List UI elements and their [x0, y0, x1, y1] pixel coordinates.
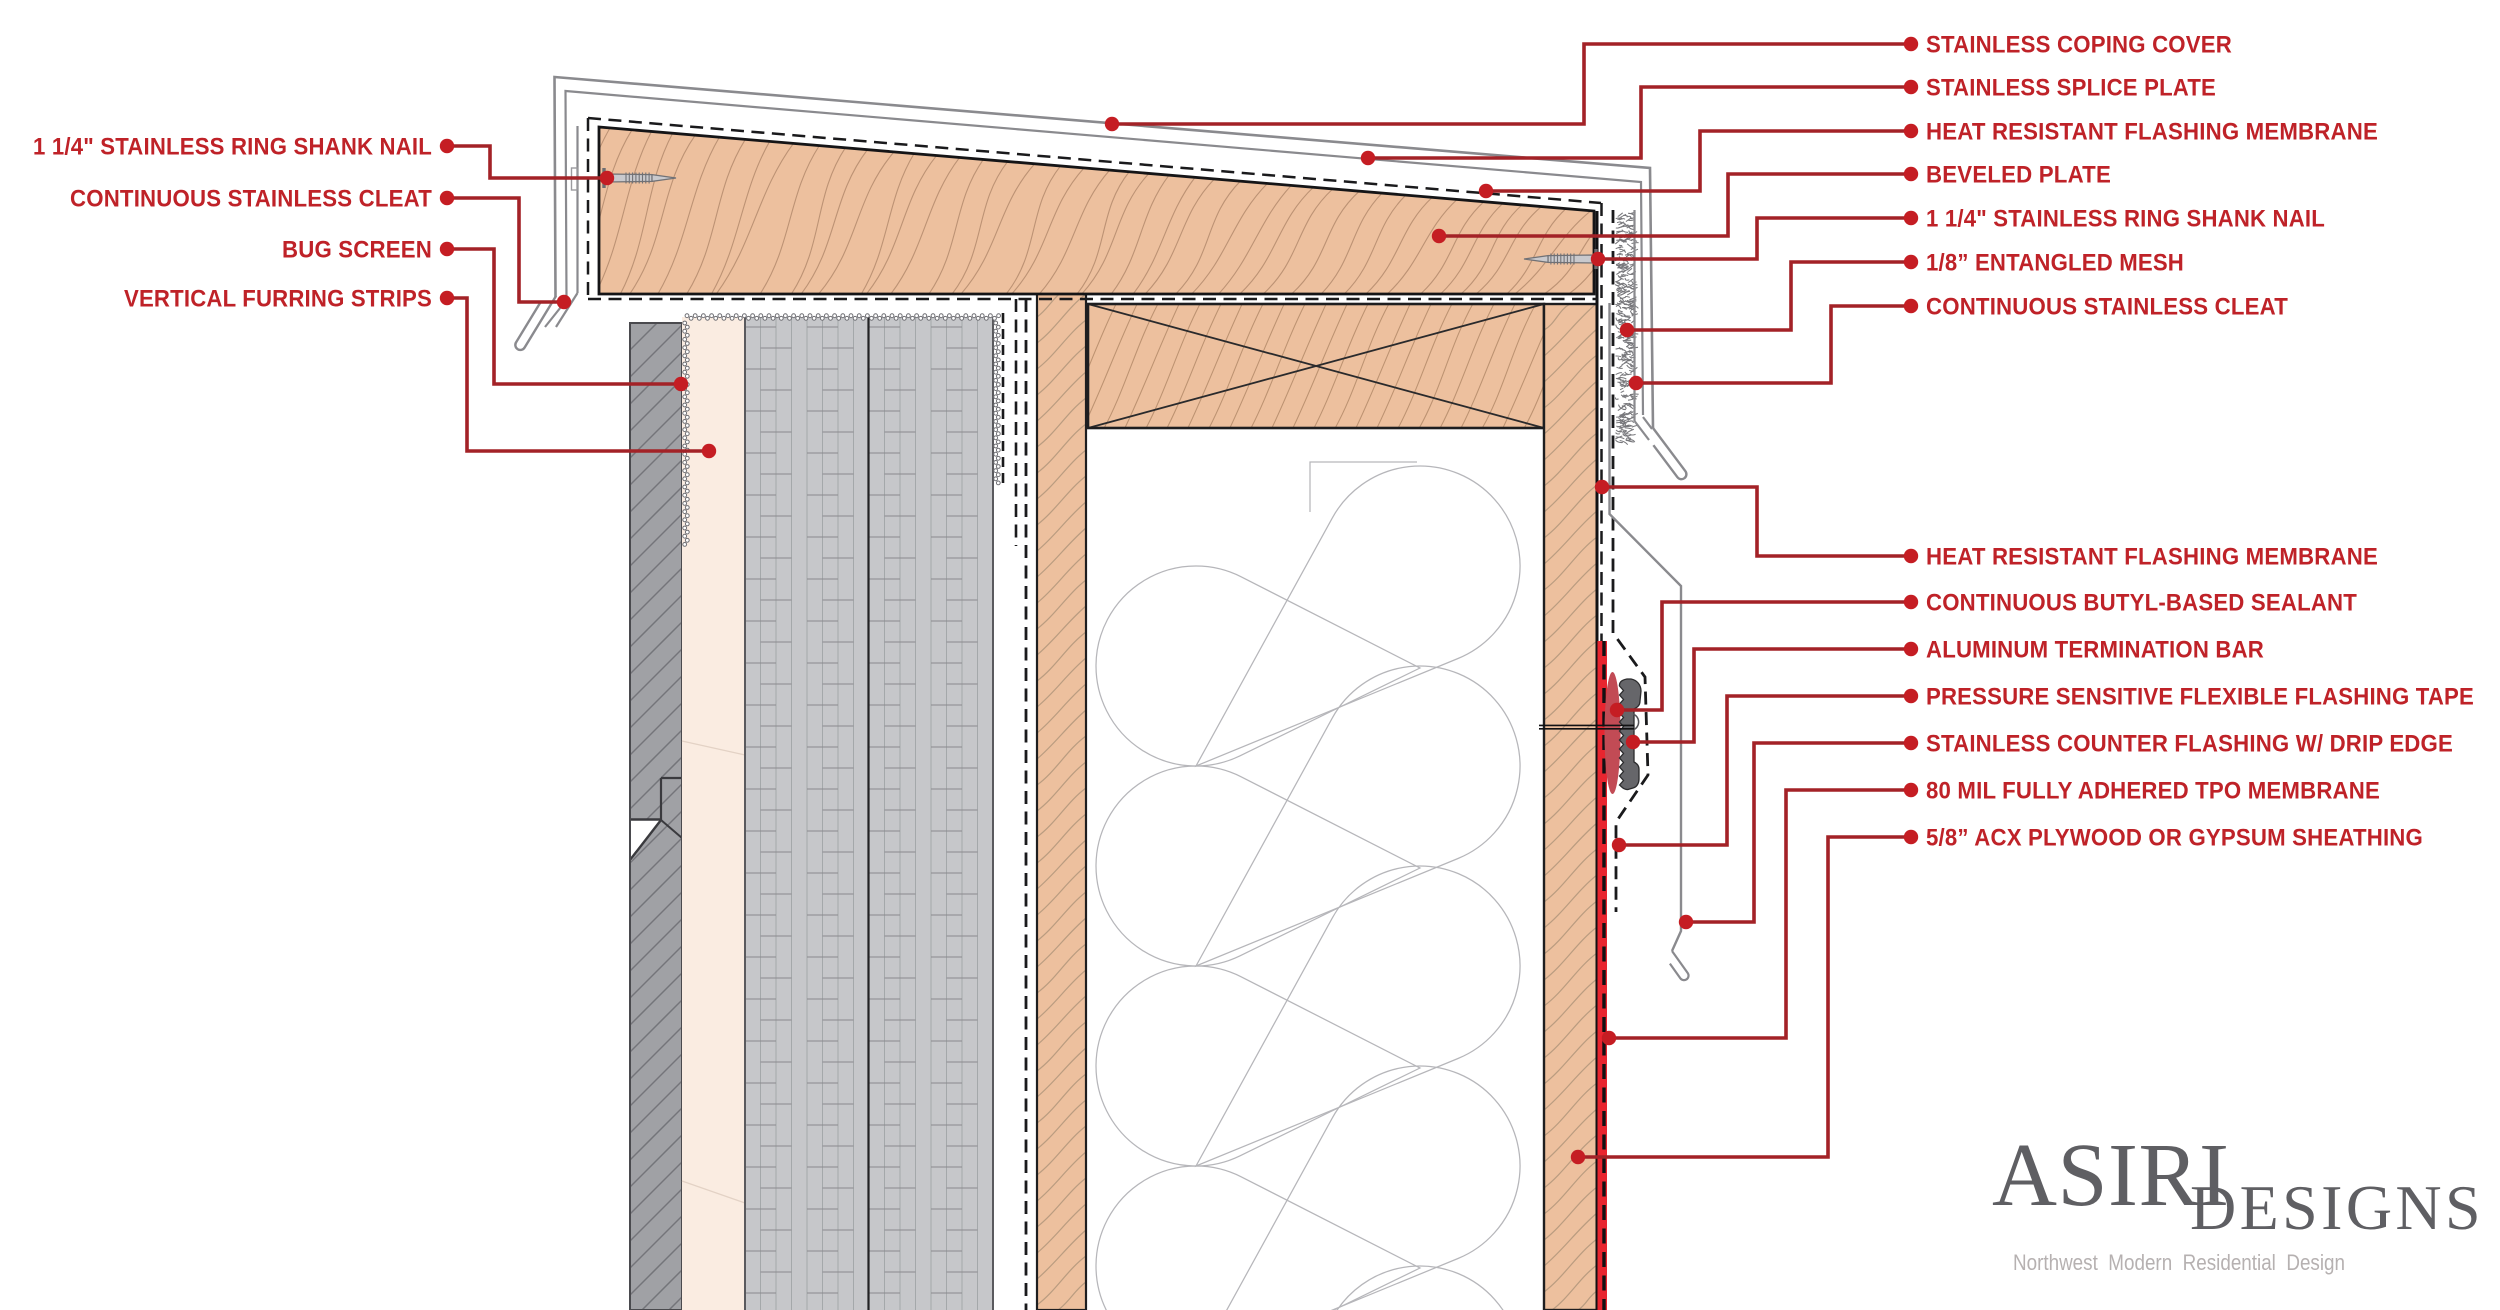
svg-text:Northwest Modern Residential: Northwest Modern Residential Design: [2013, 1250, 2345, 1275]
svg-text:HEAT RESISTANT FLASHING MEMBRA: HEAT RESISTANT FLASHING MEMBRANE: [1926, 119, 2378, 146]
svg-text:BEVELED PLATE: BEVELED PLATE: [1926, 162, 2111, 189]
svg-text:DESIGNS: DESIGNS: [2190, 1172, 2484, 1243]
svg-text:1 1/4" STAINLESS RING SHANK NA: 1 1/4" STAINLESS RING SHANK NAIL: [1926, 206, 2325, 233]
svg-text:CONTINUOUS STAINLESS CLEAT: CONTINUOUS STAINLESS CLEAT: [1926, 294, 2288, 321]
svg-text:CONTINUOUS STAINLESS CLEAT: CONTINUOUS STAINLESS CLEAT: [70, 186, 432, 213]
svg-text:HEAT RESISTANT FLASHING MEMBRA: HEAT RESISTANT FLASHING MEMBRANE: [1926, 544, 2378, 571]
svg-text:BUG SCREEN: BUG SCREEN: [282, 237, 432, 264]
svg-text:1/8” ENTANGLED MESH: 1/8” ENTANGLED MESH: [1926, 250, 2184, 277]
svg-text:STAINLESS COUNTER FLASHING W/: STAINLESS COUNTER FLASHING W/ DRIP EDGE: [1926, 731, 2453, 758]
svg-text:STAINLESS COPING COVER: STAINLESS COPING COVER: [1926, 32, 2232, 59]
svg-text:5/8” ACX PLYWOOD OR GYPSUM SHE: 5/8” ACX PLYWOOD OR GYPSUM SHEATHING: [1926, 825, 2423, 852]
svg-text:ALUMINUM TERMINATION BAR: ALUMINUM TERMINATION BAR: [1926, 637, 2264, 664]
svg-text:80 MIL FULLY ADHERED TPO MEMBR: 80 MIL FULLY ADHERED TPO MEMBRANE: [1926, 778, 2380, 805]
svg-text:1 1/4" STAINLESS RING SHANK NA: 1 1/4" STAINLESS RING SHANK NAIL: [33, 134, 432, 161]
svg-text:VERTICAL FURRING STRIPS: VERTICAL FURRING STRIPS: [124, 286, 432, 313]
svg-text:PRESSURE SENSITIVE FLEXIBLE FL: PRESSURE SENSITIVE FLEXIBLE FLASHING TAP…: [1926, 684, 2474, 711]
svg-text:CONTINUOUS BUTYL-BASED SEALANT: CONTINUOUS BUTYL-BASED SEALANT: [1926, 590, 2357, 617]
svg-text:STAINLESS SPLICE PLATE: STAINLESS SPLICE PLATE: [1926, 75, 2216, 102]
